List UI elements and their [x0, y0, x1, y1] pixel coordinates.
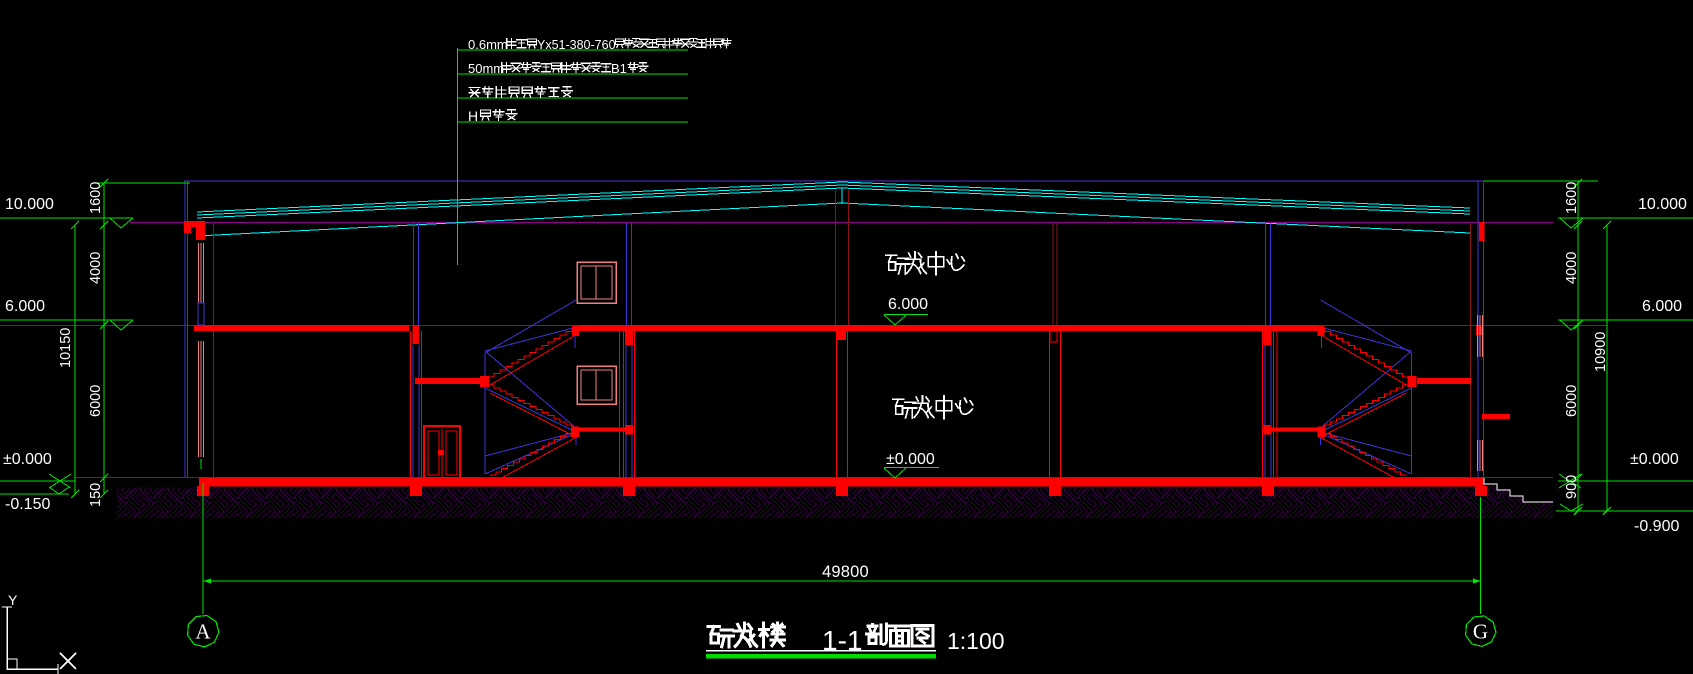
svg-text:Yx51-380-760: Yx51-380-760 — [537, 38, 616, 52]
svg-text:10150: 10150 — [58, 328, 74, 368]
svg-text:-0.150: -0.150 — [5, 496, 50, 513]
svg-text:A: A — [195, 620, 211, 644]
svg-text:6.000: 6.000 — [888, 296, 928, 313]
svg-text:0.6mm: 0.6mm — [468, 37, 508, 52]
svg-text:1600: 1600 — [88, 182, 104, 214]
svg-text:10900: 10900 — [1593, 332, 1609, 372]
svg-text:G: G — [1473, 620, 1488, 644]
svg-text:10.000: 10.000 — [1638, 196, 1687, 213]
svg-text:6000: 6000 — [1564, 385, 1580, 417]
svg-text:±0.000: ±0.000 — [3, 451, 52, 468]
svg-text:1-1: 1-1 — [822, 625, 862, 656]
svg-text:150: 150 — [88, 483, 104, 507]
svg-text:Y: Y — [8, 592, 18, 608]
svg-text:4000: 4000 — [1564, 252, 1580, 284]
svg-text:B1: B1 — [611, 61, 627, 76]
svg-text:±0.000: ±0.000 — [1630, 451, 1679, 468]
svg-text:1600: 1600 — [1564, 182, 1580, 214]
svg-text:4000: 4000 — [88, 252, 104, 284]
svg-text:50mm: 50mm — [468, 61, 504, 76]
svg-text:±0.000: ±0.000 — [886, 451, 935, 468]
svg-text:10.000: 10.000 — [5, 196, 54, 213]
svg-text:6.000: 6.000 — [5, 298, 45, 315]
svg-text:-0.900: -0.900 — [1634, 518, 1679, 535]
svg-text:49800: 49800 — [822, 563, 869, 581]
svg-text:900: 900 — [1564, 475, 1580, 499]
svg-text:1:100: 1:100 — [947, 628, 1005, 654]
svg-text:6000: 6000 — [88, 385, 104, 417]
svg-text:6.000: 6.000 — [1642, 298, 1682, 315]
svg-text:H: H — [468, 108, 478, 124]
